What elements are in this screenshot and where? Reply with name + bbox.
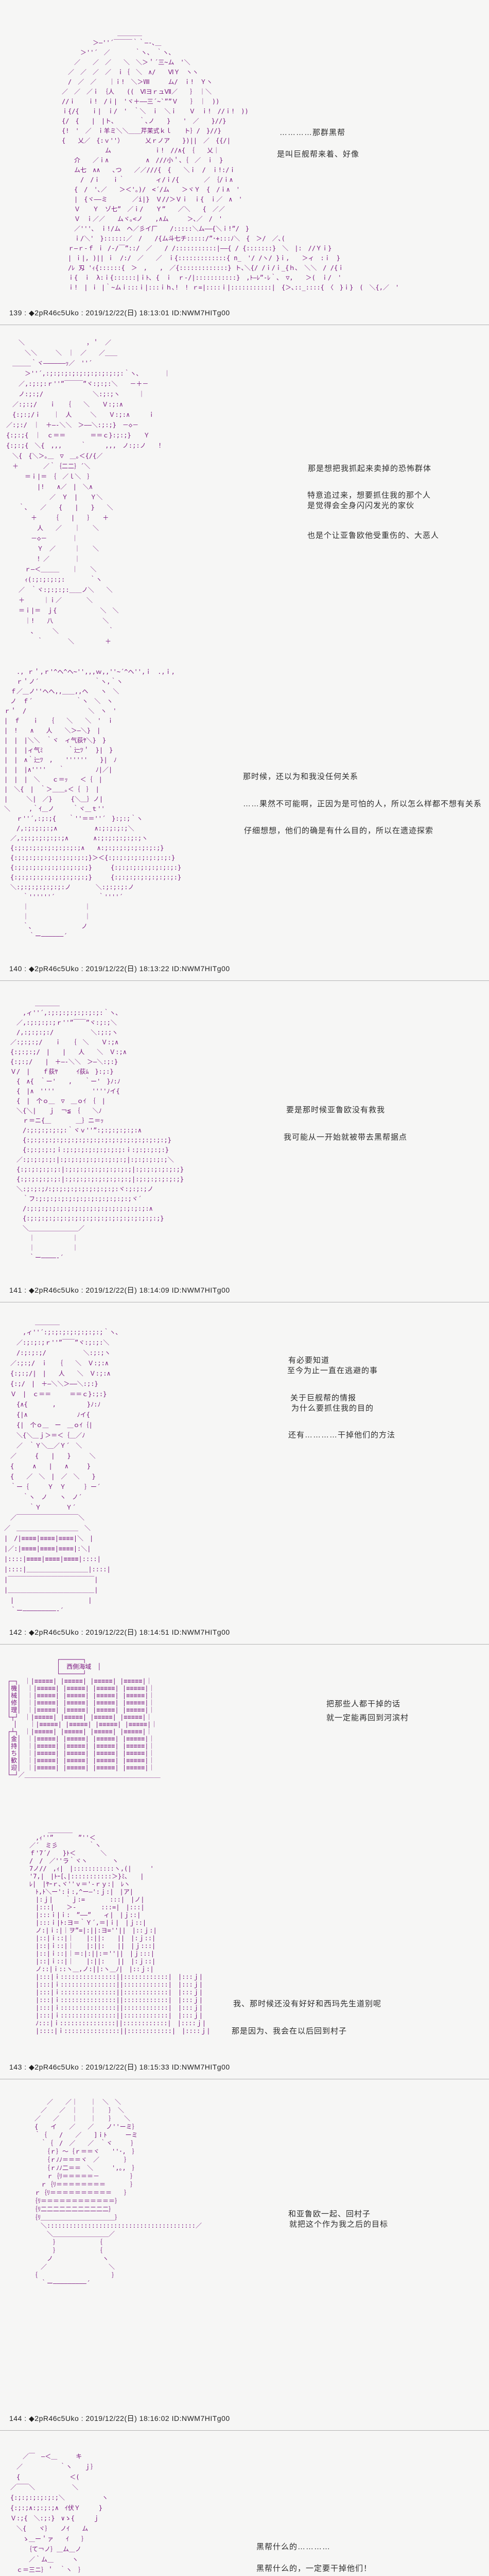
thread-page: ＿＿＿＿ ＞―''´￣￣￣｀｀―-､＿ ＞''´ ／ ｀ヽ、 ｀ヽ､ ／ ／ ／… [0,0,489,2576]
ascii-art-ship-diagram: ┌──────┐ │ 西側海域 │ └──────┘ ┌─┐ ｜|≡≡≡≡≡| … [7,1656,161,1778]
post-meta-141: 141 : ◆2pR46c5Uko : 2019/12/22(日) 18:14:… [9,1285,230,1295]
post-divider [0,1302,489,1302]
dialogue-line: 要是那时候亚鲁欧没有救我 [286,1104,385,1115]
dialogue-line: 有必要知道 [288,1354,329,1365]
dialogue-line: 也是个让亚鲁欧他受重伤的、大恶人 [307,530,439,540]
dialogue-line: 关于巨舰帮的情报 [290,1392,356,1403]
dialogue-line: 我可能从一开始就被带去黑帮据点 [284,1131,407,1142]
post-meta-142: 142 : ◆2pR46c5Uko : 2019/12/22(日) 18:14:… [9,1627,230,1637]
dialogue-line: 那时候，还以为和我没任何关系 [243,771,358,782]
dialogue-line: 黑帮什么的………… [256,2541,330,2552]
ascii-art-longhair-man: ＿＿＿＿ ,ｨ''” ”''＜ ／´ ミ彡 ｀ヽ ｆ'7´/ }ﾄ＜ ＼ / /… [23,1826,210,2035]
post-divider [0,2430,489,2431]
dialogue-line: 把那些人都干掉的话 [326,1698,400,1709]
ascii-art-thinking-face: ., ｒ＇,ｒ'^ヘ^ヘ~'',,,ｗ,,''~´^ヘ'',ｉ .,ｉ, ｒ＇ノ… [4,667,181,941]
dialogue-line: 为什么要抓住我的目的 [291,1402,374,1413]
dialogue-line: 还有…………干掉他们的方法 [288,1429,395,1440]
dialogue-line: 仔细想想，他们的确是有什么目的，所以在遗迹探索 [244,825,433,836]
dialogue-line: 就一定能再回到河滨村 [326,1712,409,1723]
dialogue-line: 我、那时候还没有好好和西玛先生道别呢 [233,1998,381,2009]
post-meta-140: 140 : ◆2pR46c5Uko : 2019/12/22(日) 18:13:… [9,963,230,974]
ascii-art-cheering-girl: ／￣ ―＜＿ キ ／ ｀ヽ ｊ｝ { ＜( ／￣￣＼ ＼ {:;:;:;:;:;… [4,2451,138,2576]
dialogue-line: 那是想把我抓起来卖掉的恐怖群体 [308,463,431,473]
ascii-art-figure-with-machine: ／ ／｜ ｜ ＼ ＼ ／ ／ ｜ ｜ ｝ ＼ ／ ／ ｜ ｜ ｝ ＼ { イ ／… [28,2098,202,2287]
dialogue-line: 那是因为、我会在以后回到村子 [232,2025,347,2036]
dialogue-line: …………那群黑帮 [280,127,345,138]
dialogue-line: 黑帮什么的，一定要干掉他们！ [256,2563,372,2573]
ascii-art-sparkle-face: ＼ ，＇ ／ ＼＼ ＼ ｜ ／ ／＿＿ ＿＿＿｀ヾ――――――ｯ／ ''´ ＞'… [6,337,170,647]
post-divider [0,1644,489,1645]
post-meta-143: 143 : ◆2pR46c5Uko : 2019/12/22(日) 18:15:… [9,2062,230,2072]
ascii-art-worried-girl: ＿＿＿＿ ,ィ''´,:;:;:;:;:;:;:;:｀ヽ､ ／,:;:;:;:;… [4,998,184,1263]
dialogue-line: 和亚鲁欧一起、回村子 [288,2208,371,2219]
post-meta-144: 144 : ◆2pR46c5Uko : 2019/12/22(日) 18:16:… [9,2413,230,2424]
dialogue-line: 特意追过来，想要抓住我的那个人 [307,489,431,500]
post-divider [0,2079,489,2079]
dialogue-line: ……果然不可能啊，正因为是可怕的人，所以怎么样都不想有关系 [243,798,482,809]
dialogue-line: 是叫巨舰帮来着、好像 [277,148,359,159]
post-meta-139: 139 : ◆2pR46c5Uko : 2019/12/22(日) 18:13:… [9,308,230,318]
dialogue-line: 是觉得会全身闪闪发光的家伙 [307,500,414,511]
post-divider [0,980,489,981]
post-divider [0,325,489,325]
dialogue-line: 就把这个作为我之后的目标 [289,2218,388,2229]
ascii-art-girl-portrait: ＿＿＿＿ ＞―''´￣￣￣｀｀―-､＿ ＞''´ ／ ｀ヽ、 ｀ヽ､ ／ ／ ／… [62,28,399,293]
ascii-art-girl-at-console: ＿＿＿＿ ,ィ''´:;:;:;:;:;:;:;:;｀ヽ､ ／:;:;:;ｒ''… [4,1317,119,1616]
dialogue-line: 至今为止一直在逃避的事 [287,1365,378,1376]
